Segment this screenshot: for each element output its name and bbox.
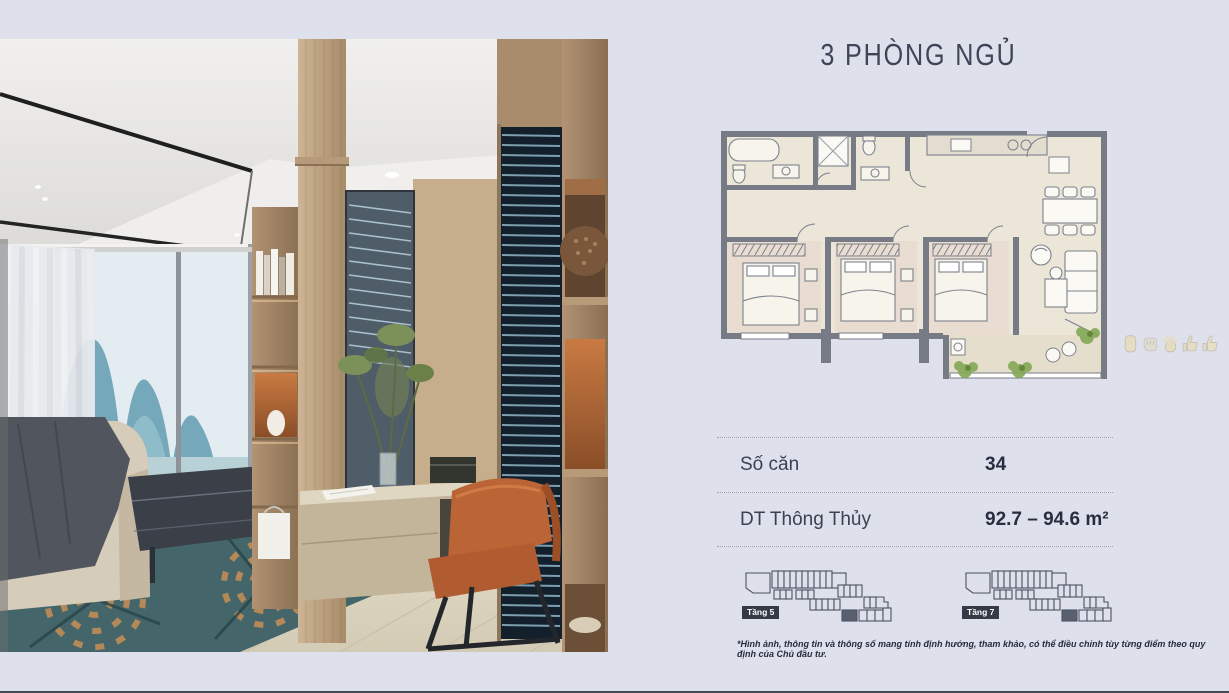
balcony-rail — [950, 373, 1101, 378]
detail-label: DT Thông Thủy — [740, 509, 985, 531]
floor-plan-image — [713, 123, 1113, 398]
interior-photo-image — [0, 39, 608, 652]
thumbs-up-icon — [1182, 334, 1199, 353]
raised-hand-icon — [1122, 334, 1139, 353]
books — [256, 249, 294, 295]
disclaimer-text: *Hình ảnh, thông tin và thông số mang tí… — [737, 639, 1207, 659]
detail-label: Số căn — [740, 454, 985, 476]
reaction-icons — [1122, 334, 1219, 353]
open-hand-icon — [1162, 334, 1179, 353]
desk-niche — [346, 155, 501, 499]
thumbs-up-icon — [1202, 334, 1219, 353]
table-row: Số căn 34 — [717, 437, 1113, 492]
desk-box — [430, 457, 476, 483]
detail-value: 92.7 – 94.6 m² — [985, 509, 1113, 531]
wall-shadow — [0, 239, 8, 652]
fist-icon — [1142, 334, 1159, 353]
brochure-page: 3 PHÒNG NGỦ — [0, 0, 1229, 693]
floor-badge: Tầng 7 — [962, 606, 999, 619]
bed — [0, 417, 150, 611]
right-shelf-column — [560, 39, 608, 652]
unit-details-table: Số căn 34 DT Thông Thủy 92.7 – 94.6 m² — [717, 437, 1113, 547]
beds — [743, 259, 987, 325]
wardrobes — [733, 244, 991, 256]
dining-area — [1043, 187, 1097, 235]
detail-value: 34 — [985, 454, 1113, 476]
bookshelf — [252, 207, 300, 609]
floor-diagram-tang-7: Tầng 7 — [958, 560, 1118, 624]
floor-badge: Tầng 5 — [742, 606, 779, 619]
floor-diagram-tang-5: Tầng 5 — [738, 560, 898, 624]
page-title: 3 PHÒNG NGỦ — [608, 40, 1229, 71]
table-row: DT Thông Thủy 92.7 – 94.6 m² — [717, 492, 1113, 547]
